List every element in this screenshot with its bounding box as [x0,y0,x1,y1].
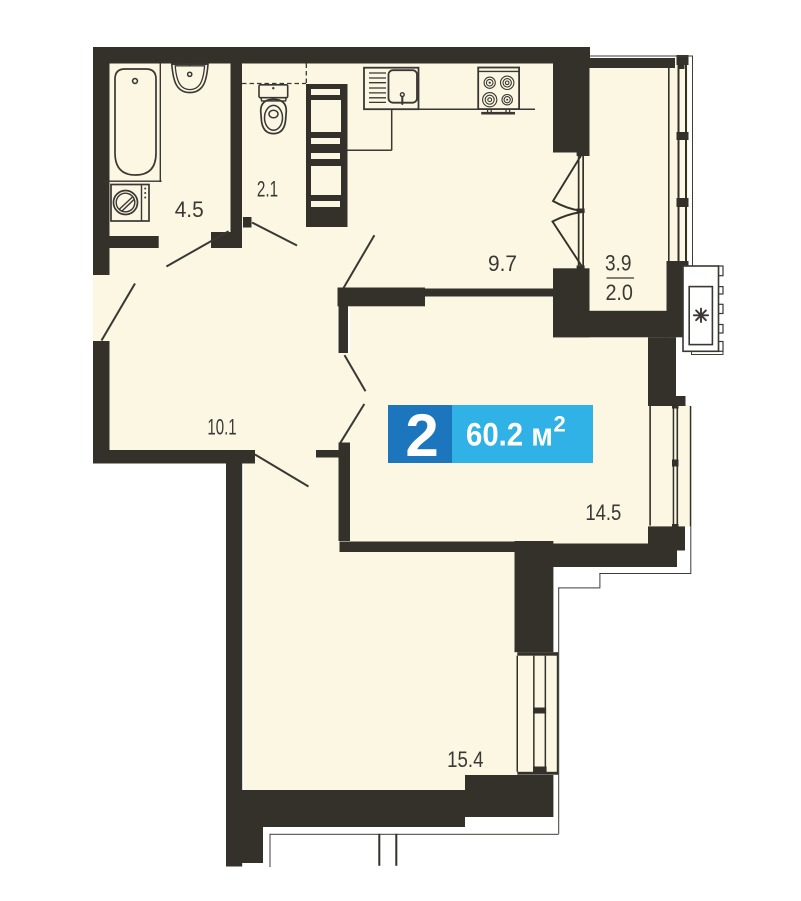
svg-text:3.9: 3.9 [605,251,632,276]
svg-text:2.1: 2.1 [257,177,278,202]
svg-text:60.2 м: 60.2 м [466,417,553,453]
svg-text:15.4: 15.4 [447,747,483,772]
svg-text:2.0: 2.0 [605,280,633,305]
svg-text:4.5: 4.5 [175,197,204,222]
svg-text:9.7: 9.7 [488,251,517,276]
svg-text:2: 2 [554,412,566,437]
svg-text:14.5: 14.5 [585,500,621,525]
svg-text:10.1: 10.1 [207,414,236,439]
svg-text:2: 2 [405,402,438,469]
